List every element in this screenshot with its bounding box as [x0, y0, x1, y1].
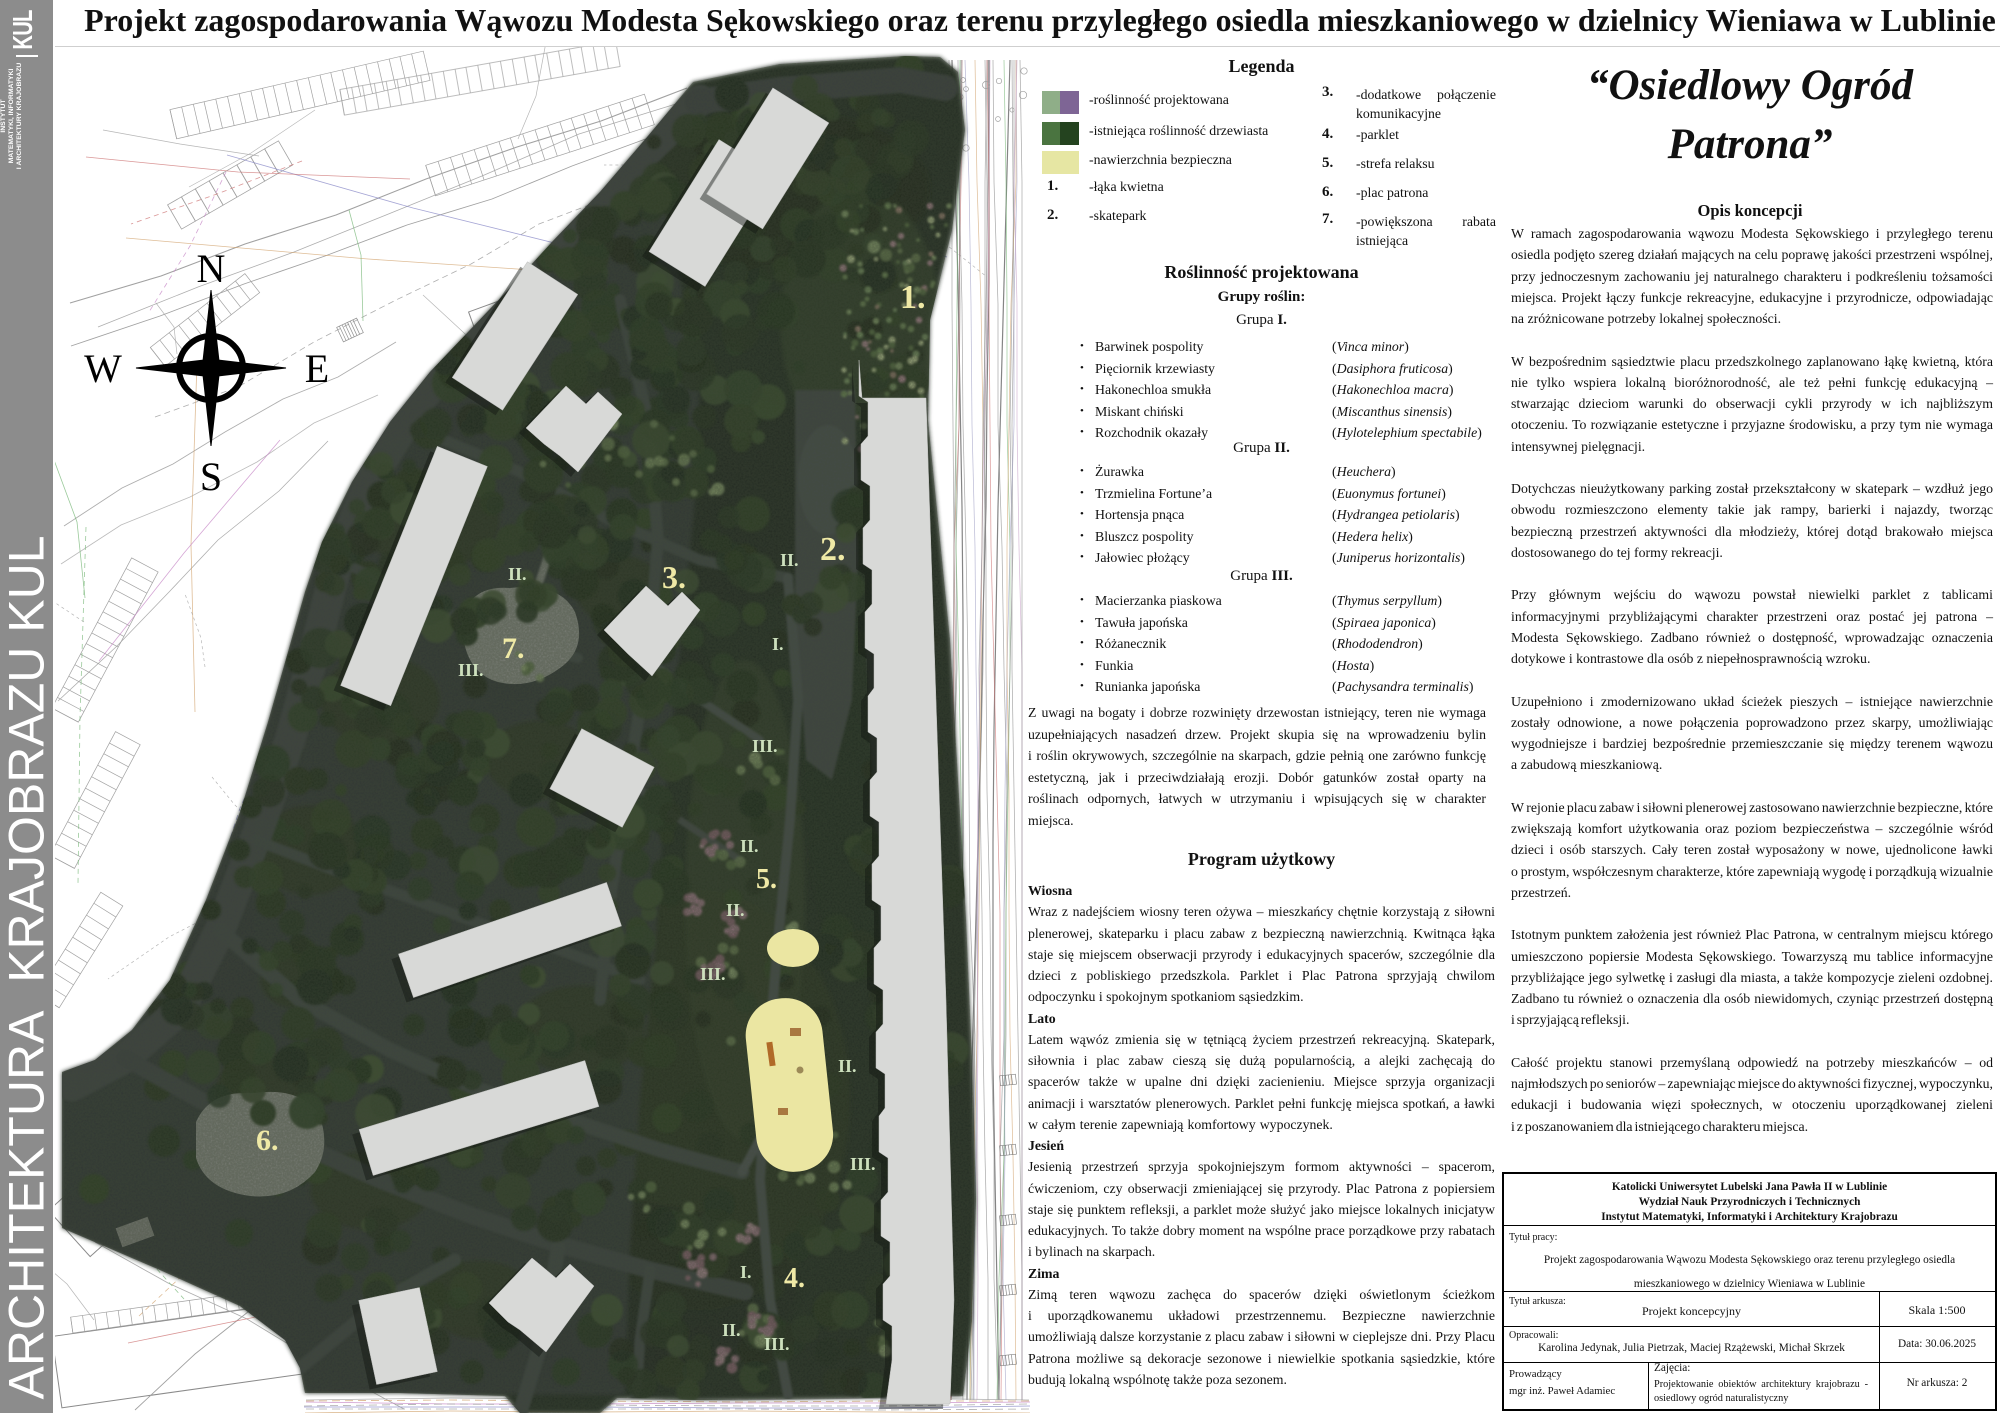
svg-text:III.: III. — [850, 1154, 876, 1174]
svg-text:1.: 1. — [900, 279, 926, 316]
svg-text:II.: II. — [740, 836, 759, 856]
svg-text:4.: 4. — [784, 1263, 805, 1294]
svg-text:N: N — [197, 246, 226, 291]
svg-text:2.: 2. — [820, 531, 846, 568]
svg-text:6.: 6. — [256, 1124, 279, 1157]
svg-text:E: E — [305, 346, 329, 391]
svg-text:II.: II. — [722, 1320, 741, 1340]
svg-text:W: W — [84, 346, 122, 391]
svg-text:5.: 5. — [756, 864, 777, 895]
svg-text:III.: III. — [764, 1334, 790, 1354]
svg-text:3.: 3. — [662, 559, 686, 595]
svg-text:II.: II. — [508, 564, 527, 584]
svg-text:II.: II. — [780, 550, 799, 570]
svg-text:II.: II. — [838, 1056, 857, 1076]
svg-text:S: S — [200, 454, 222, 499]
svg-text:I.: I. — [772, 634, 784, 654]
svg-text:III.: III. — [700, 964, 726, 984]
svg-text:7.: 7. — [502, 632, 525, 665]
svg-text:III.: III. — [458, 660, 484, 680]
svg-text:II.: II. — [726, 900, 745, 920]
svg-text:III.: III. — [752, 736, 778, 756]
svg-text:I.: I. — [740, 1262, 752, 1282]
